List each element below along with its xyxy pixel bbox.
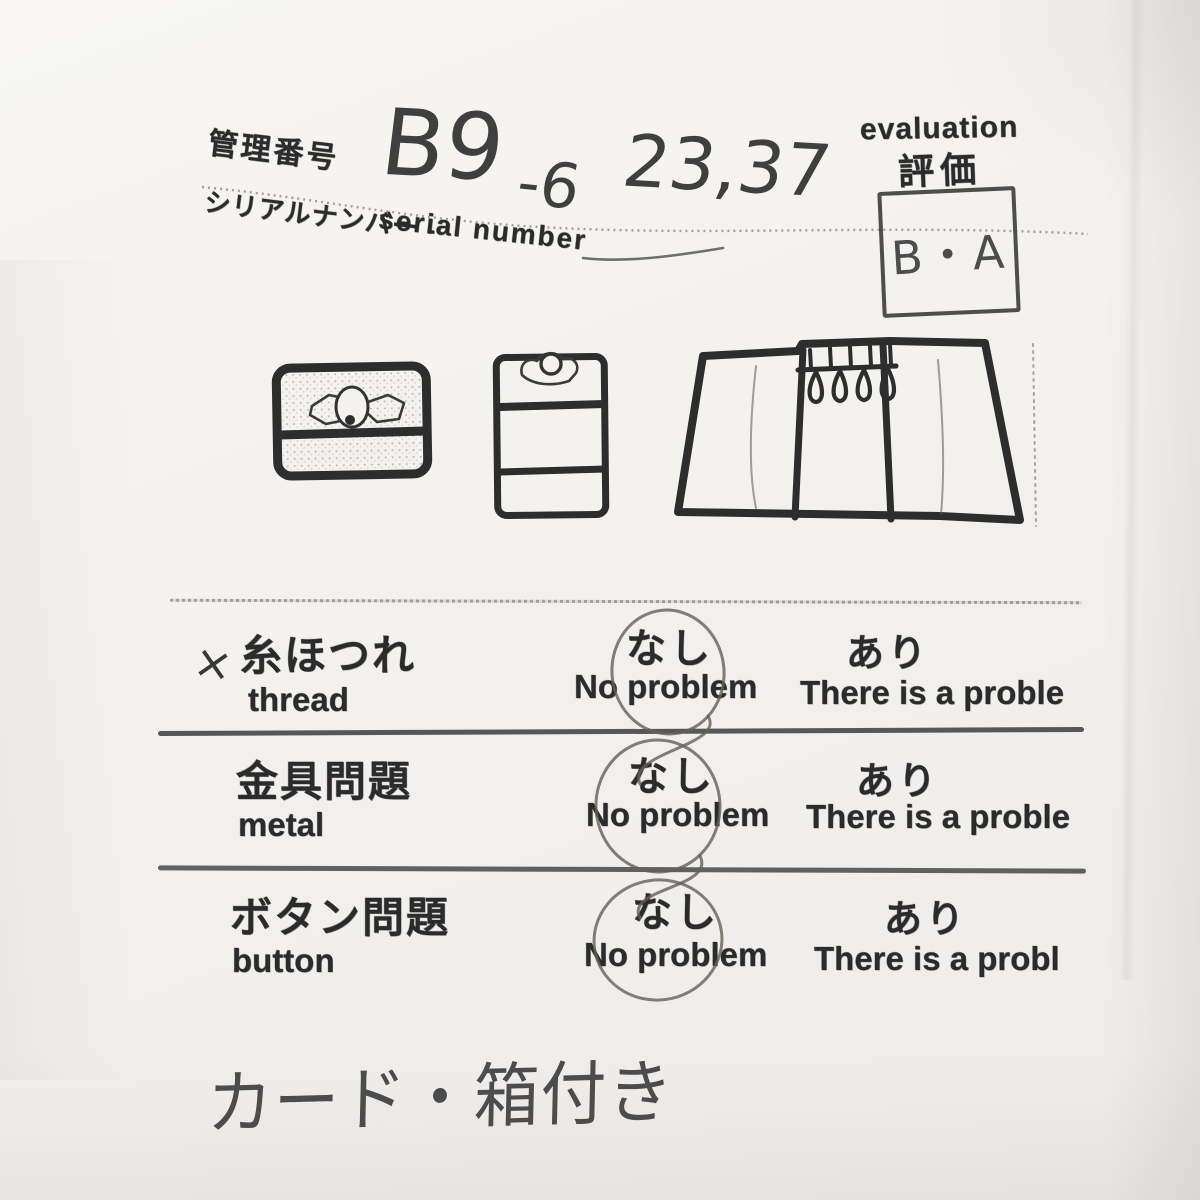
evaluation-box: B・A (877, 186, 1020, 318)
row-thread-option-yes-jp: あり (846, 622, 930, 677)
row-button-option-yes-en: There is a probl (814, 940, 1060, 978)
row-metal-option-yes-jp: あり (856, 750, 940, 805)
product-sketches (250, 330, 1040, 555)
selection-circles (540, 600, 800, 1020)
evaluation-value: B・A (890, 216, 1009, 289)
management-number-value-part3: 23,37 (618, 119, 837, 213)
row-thread-label-en: thread (248, 681, 349, 719)
handwritten-note: カード・箱付き (206, 1036, 675, 1149)
row-metal-label-en: metal (238, 806, 324, 844)
row-button-label-en: button (232, 942, 335, 980)
row-metal-option-yes-en: There is a proble (806, 798, 1070, 836)
management-number-value-part1: B9 (376, 89, 511, 202)
serial-number-underline (575, 240, 735, 270)
row-thread-label-jp: 糸ほつれ (240, 622, 416, 683)
wallet-closed-front-sketch (276, 366, 428, 477)
management-number-value-part2: -6 (512, 145, 586, 224)
paper-shadow-left (0, 260, 130, 1080)
wallet-vertical-clasp-sketch (496, 353, 606, 515)
inspection-sheet-photo: 管理番号 B9 -6 23,37 シリアルナンバー - serial numbe… (0, 0, 1200, 1200)
key-case-open-sketch (678, 341, 1036, 526)
row-button-option-yes-jp: あり (884, 888, 968, 943)
row-thread-handwritten-mark: × (190, 633, 237, 693)
row-thread-option-yes-en: There is a proble (800, 674, 1064, 712)
row-metal-label-jp: 金具問題 (236, 748, 412, 809)
row-button-label-jp: ボタン問題 (230, 884, 450, 945)
